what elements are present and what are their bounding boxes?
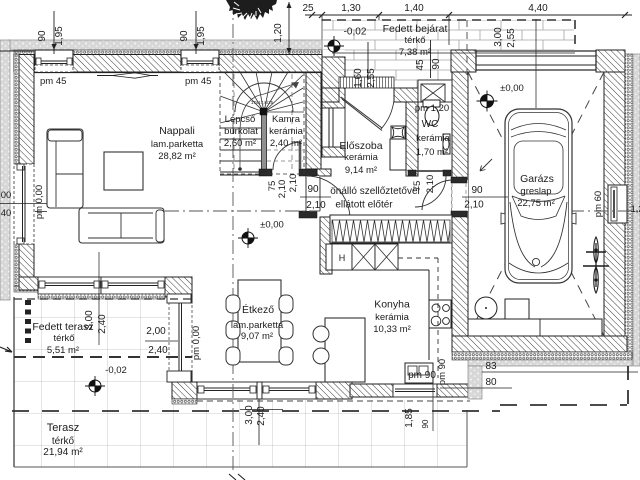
svg-text:40: 40 (1, 208, 12, 219)
svg-text:3,00: 3,00 (84, 310, 95, 330)
svg-text:pm 45: pm 45 (40, 76, 66, 87)
svg-text:2,40: 2,40 (256, 406, 267, 426)
svg-text:ellátott előtér: ellátott előtér (335, 200, 393, 211)
svg-text:4,40: 4,40 (528, 3, 548, 14)
svg-text:pm 90: pm 90 (408, 370, 436, 381)
svg-text:pm 45: pm 45 (185, 76, 211, 87)
svg-text:Garázs: Garázs (520, 173, 554, 185)
svg-text:2,55: 2,55 (506, 28, 517, 48)
svg-text:önálló szellőztetővel: önálló szellőztetővel (330, 186, 420, 197)
svg-text:pm 0,00: pm 0,00 (191, 326, 202, 360)
svg-text:2,00: 2,00 (146, 326, 166, 337)
svg-text:5,51 m²: 5,51 m² (47, 345, 79, 356)
svg-text:Fedett bejárat: Fedett bejárat (383, 23, 448, 35)
svg-text:83: 83 (485, 361, 497, 372)
svg-text:térkő: térkő (404, 35, 425, 46)
svg-text:WC: WC (422, 119, 439, 130)
svg-text:25: 25 (302, 3, 314, 14)
svg-text:Kamra: Kamra (272, 114, 301, 125)
svg-text:22,75 m²: 22,75 m² (517, 198, 555, 209)
svg-text:2,10: 2,10 (464, 200, 484, 211)
svg-text:1,40: 1,40 (404, 3, 424, 14)
svg-text:3,00: 3,00 (493, 27, 504, 47)
svg-text:Konyha: Konyha (374, 299, 410, 311)
svg-text:burkolat: burkolat (224, 126, 258, 137)
svg-text:kerámia: kerámia (344, 152, 379, 163)
svg-text:1,95: 1,95 (196, 26, 207, 46)
svg-text:2,40: 2,40 (148, 345, 168, 356)
svg-text:45: 45 (415, 59, 426, 71)
svg-text:1,2: 1,2 (631, 204, 640, 214)
svg-text:kerámia: kerámia (416, 133, 451, 144)
svg-text:lam.parketta: lam.parketta (231, 320, 284, 331)
svg-text:-0,02: -0,02 (105, 365, 127, 376)
svg-text:2,10: 2,10 (306, 200, 326, 211)
svg-text:10,33 m²: 10,33 m² (373, 324, 411, 335)
svg-text:90: 90 (431, 58, 442, 70)
svg-text:1,30: 1,30 (341, 3, 361, 14)
svg-text:2,10: 2,10 (425, 175, 436, 194)
svg-text:90: 90 (421, 419, 430, 428)
svg-text:-0,02: -0,02 (344, 27, 367, 38)
svg-text:térkő: térkő (53, 333, 74, 344)
svg-text:7,38 m²: 7,38 m² (399, 47, 431, 58)
svg-text:Étkező: Étkező (242, 303, 274, 316)
svg-text:28,82 m²: 28,82 m² (158, 151, 196, 162)
svg-text:1,95: 1,95 (54, 26, 65, 46)
svg-text:90: 90 (37, 30, 48, 42)
svg-text:kerámia: kerámia (269, 126, 304, 137)
svg-text:9,14 m²: 9,14 m² (345, 165, 377, 176)
svg-text:pm 1,20: pm 1,20 (415, 103, 449, 114)
svg-text:greslap: greslap (520, 186, 551, 197)
svg-text:pm 60: pm 60 (593, 191, 604, 217)
svg-text:Előszoba: Előszoba (339, 140, 382, 152)
svg-text:pm 90: pm 90 (437, 359, 448, 385)
svg-text:pm 0,00: pm 0,00 (34, 185, 45, 219)
svg-text:90: 90 (471, 185, 483, 196)
svg-text:90: 90 (179, 30, 190, 42)
svg-text:Terasz: Terasz (47, 422, 79, 434)
svg-text:9,07 m²: 9,07 m² (241, 331, 273, 342)
svg-text:±0,00: ±0,00 (260, 220, 284, 231)
svg-text:térkő: térkő (52, 436, 75, 447)
svg-text:00: 00 (1, 190, 12, 201)
svg-text:1,85: 1,85 (404, 408, 415, 428)
svg-text:21,94 m²: 21,94 m² (43, 447, 83, 458)
svg-text:2,60 m²: 2,60 m² (224, 138, 256, 149)
svg-text:75: 75 (412, 181, 423, 192)
svg-text:2,10: 2,10 (288, 174, 299, 193)
svg-text:H: H (339, 253, 346, 263)
svg-text:1,20: 1,20 (273, 23, 284, 43)
svg-text:Lépcső: Lépcső (225, 114, 256, 125)
svg-text:80: 80 (485, 377, 497, 388)
svg-text:2,10: 2,10 (277, 180, 288, 199)
svg-text:Nappali: Nappali (159, 125, 195, 137)
svg-text:3,00: 3,00 (244, 405, 255, 425)
svg-text:17x17,8/25: 17x17,8/25 (251, 100, 274, 105)
svg-text:90: 90 (307, 184, 319, 195)
svg-text:1,60: 1,60 (353, 68, 364, 88)
svg-text:2,40 m²: 2,40 m² (270, 138, 302, 149)
svg-text:kerámia: kerámia (375, 312, 410, 323)
svg-text:lam.parketta: lam.parketta (151, 139, 204, 150)
svg-text:1,70 m²: 1,70 m² (416, 147, 448, 158)
svg-text:±0,00: ±0,00 (500, 83, 524, 94)
